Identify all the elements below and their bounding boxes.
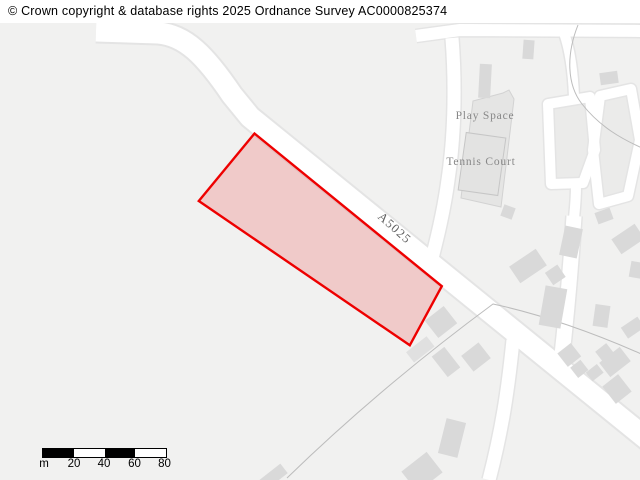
map-canvas[interactable]: A5025 Play Space Tennis Court xyxy=(0,0,640,480)
tennis-court-label: Tennis Court xyxy=(446,156,515,168)
play-space-label: Play Space xyxy=(456,110,515,122)
map-viewport[interactable]: A5025 Play Space Tennis Court © Crown co… xyxy=(0,0,640,480)
copyright-banner: © Crown copyright & database rights 2025… xyxy=(0,0,640,23)
copyright-text: © Crown copyright & database rights 2025… xyxy=(8,4,447,18)
